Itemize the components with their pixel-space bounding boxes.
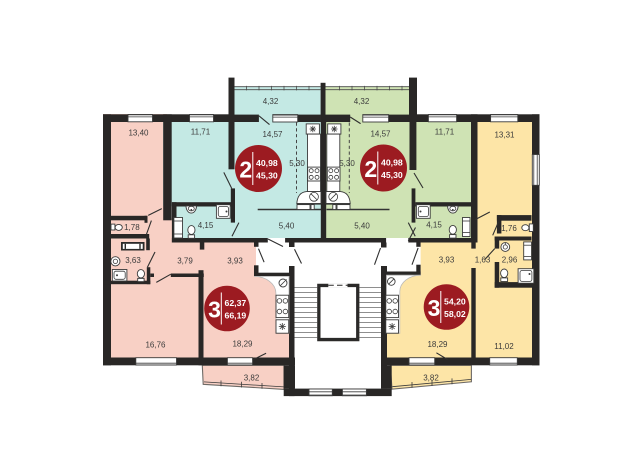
svg-text:3,93: 3,93 [227,257,243,266]
svg-text:5,40: 5,40 [279,222,295,231]
svg-text:45,30: 45,30 [256,170,278,180]
svg-text:5,40: 5,40 [354,222,370,231]
svg-text:18,29: 18,29 [232,340,253,349]
svg-text:2,96: 2,96 [502,256,518,265]
svg-text:3,82: 3,82 [244,374,260,383]
svg-text:45,30: 45,30 [381,170,403,180]
svg-text:4,15: 4,15 [426,221,442,230]
svg-text:1,78: 1,78 [124,223,140,232]
svg-text:58,02: 58,02 [444,309,466,319]
svg-text:3,82: 3,82 [423,374,439,383]
svg-text:5,30: 5,30 [289,159,305,168]
svg-text:3: 3 [428,295,441,321]
svg-text:3: 3 [208,297,221,323]
svg-text:5,30: 5,30 [339,159,355,168]
svg-text:40,98: 40,98 [256,158,278,168]
svg-text:13,40: 13,40 [128,128,149,137]
svg-text:18,29: 18,29 [427,340,448,349]
svg-text:11,71: 11,71 [191,128,211,137]
svg-text:13,31: 13,31 [494,131,515,140]
svg-text:54,20: 54,20 [444,296,466,306]
svg-text:11,71: 11,71 [435,128,455,137]
svg-text:4,32: 4,32 [354,97,370,106]
svg-text:1,76: 1,76 [501,224,517,233]
svg-text:66,19: 66,19 [225,310,247,320]
svg-text:11,02: 11,02 [494,342,514,351]
svg-text:40,98: 40,98 [381,157,403,167]
svg-text:3,63: 3,63 [125,256,141,265]
svg-text:2: 2 [364,156,377,182]
svg-text:2: 2 [239,157,252,183]
svg-text:16,76: 16,76 [145,341,166,350]
svg-text:62,37: 62,37 [225,298,247,308]
svg-text:1,63: 1,63 [475,256,491,265]
svg-text:14,57: 14,57 [262,130,283,139]
svg-text:3,93: 3,93 [439,256,455,265]
svg-text:14,57: 14,57 [370,130,391,139]
svg-text:3,79: 3,79 [177,257,193,266]
svg-text:4,32: 4,32 [263,97,279,106]
svg-text:4,15: 4,15 [198,221,214,230]
